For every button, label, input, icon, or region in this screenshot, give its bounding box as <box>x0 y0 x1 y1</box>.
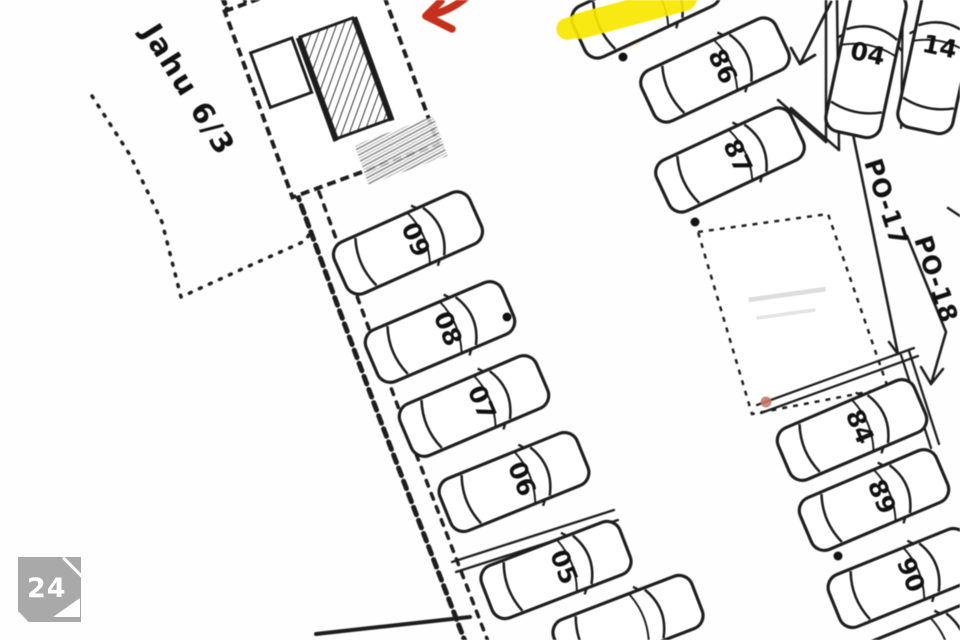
street-label: Jahu 6/3 <box>134 16 243 162</box>
red-arrow-icon <box>426 0 472 29</box>
watermark-number: 24 <box>27 572 67 603</box>
building-footprint <box>225 0 448 210</box>
watermark-badge: 24 <box>18 557 81 622</box>
parking-row-middle <box>327 183 709 640</box>
parking-row-top-right <box>818 0 960 141</box>
site-plan-screenshot: 09 08 07 06 05 86 87 84 89 90 04 14 Jahu… <box>0 0 960 640</box>
site-plan-map: 09 08 07 06 05 86 87 84 89 90 04 14 Jahu… <box>0 0 960 640</box>
zone-label-po18: PO-18 <box>908 232 960 327</box>
dashed-parking-area <box>698 214 888 414</box>
